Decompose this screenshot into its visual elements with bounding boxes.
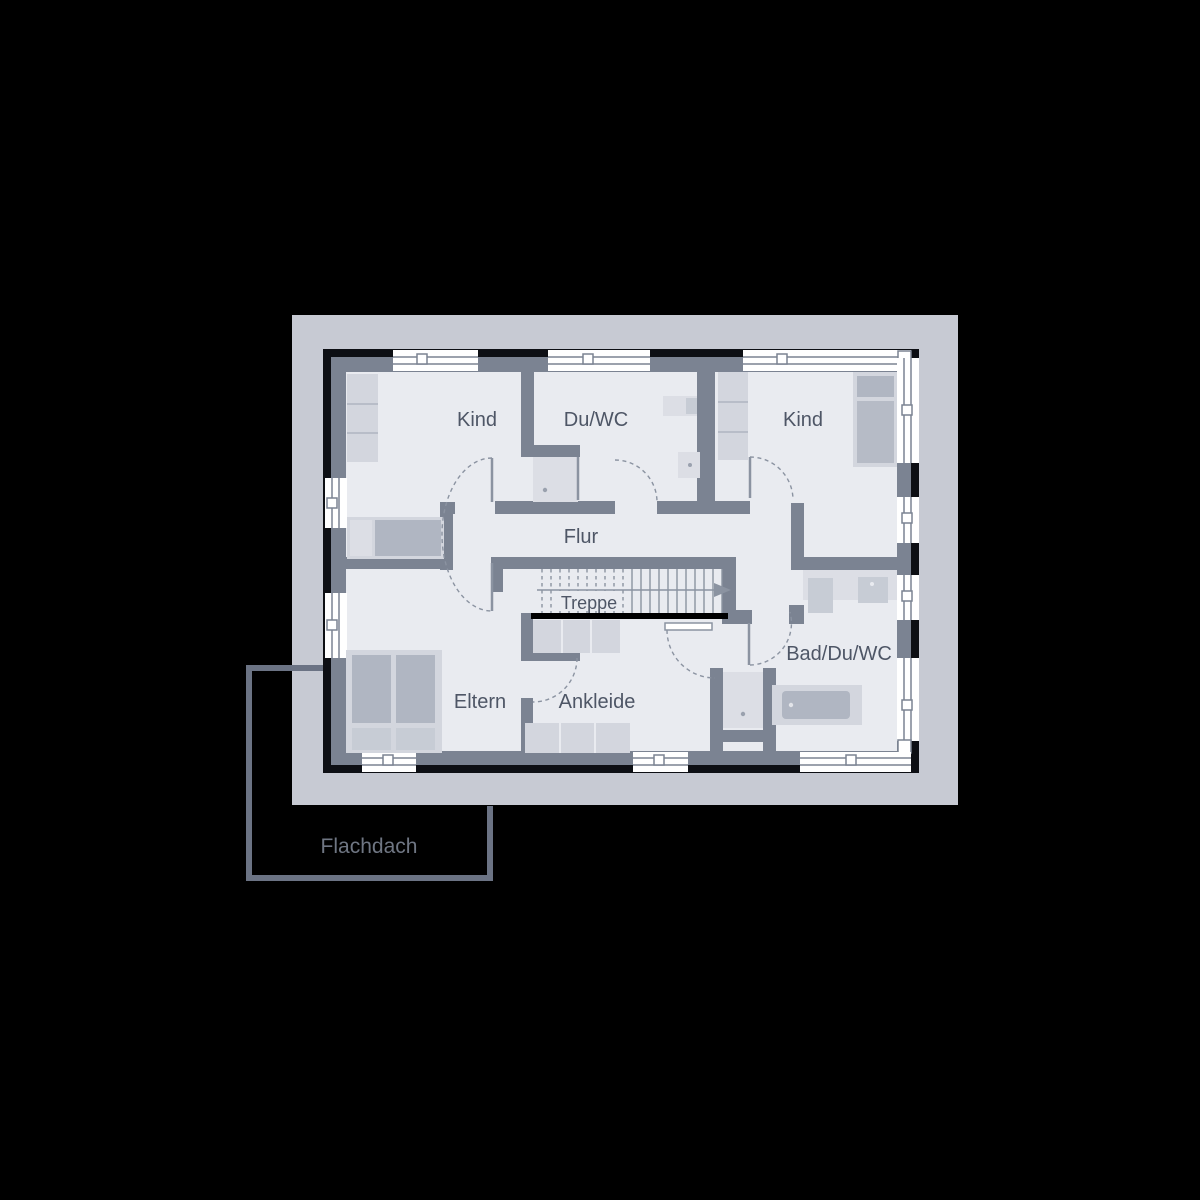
window-post [846,755,856,765]
window-west-kind-left [325,478,347,528]
window-post [902,591,912,601]
closet [525,723,630,753]
window-post [327,620,337,630]
room-label-kind-left: Kind [457,409,497,431]
window-post [902,513,912,523]
wall-stair-east [722,557,736,612]
window-south-bad [800,752,911,772]
window-north-kind-right [743,350,911,371]
window-post [327,498,337,508]
wall-stair-north [491,557,734,569]
window-east-2 [897,497,919,543]
window-west-eltern [325,593,347,658]
window-post [902,405,912,415]
room-label-treppe: Treppe [561,593,617,613]
room-label-eltern: Eltern [454,691,506,713]
floor-plan-screenshot: Treppe Kind Du/WC Kind Flur Eltern Ankle… [0,0,1200,1200]
shower-tray [723,672,763,728]
washbasin [663,396,697,416]
window-south-eltern [362,752,416,772]
room-label-flur: Flur [564,526,599,548]
room-label-du-wc: Du/WC [564,409,628,431]
window-post [383,755,393,765]
window-post [654,755,664,765]
toilet [678,452,700,478]
double-bed [346,650,442,753]
wall-bad-door-jamb-right [789,605,804,624]
wardrobe [347,374,378,462]
flachdach-label: Flachdach [321,835,418,858]
wall-duwc-east [697,372,715,513]
window-post [417,354,427,364]
stair-cut-line [531,613,728,619]
wall-bad-north [803,557,897,570]
wall-flur-kindR [791,503,804,570]
wall-flur-north-1 [495,501,615,514]
closet [533,620,620,653]
wardrobe [718,372,748,460]
window-post [777,354,787,364]
window-east-kind-right [897,358,919,463]
room-label-bad-du-wc: Bad/Du/WC [786,643,892,665]
bed [347,517,444,559]
wall-kindL-duwc [521,372,534,447]
wall-duwc-shelf [521,445,580,457]
window-east-3 [897,575,919,620]
window-north-duwc [548,350,650,371]
shower-tray [533,457,578,502]
room-label-ankleide: Ankleide [559,691,636,713]
room-label-kind-right: Kind [783,409,823,431]
bed [853,372,897,467]
window-south-ankleide [633,752,688,772]
window-corner-post [898,740,911,753]
bathtub [772,685,862,725]
wall-shower-south [710,730,776,742]
window-north-kind-left [393,350,478,371]
window-east-bad [897,658,919,753]
floor-plan-svg: Treppe Kind Du/WC Kind Flur Eltern Ankle… [0,0,1200,1200]
window-post [902,700,912,710]
door-leaf [665,623,712,630]
wall-closet-niche-h [521,653,580,661]
window-post [583,354,593,364]
wall-closet-niche-v [521,613,533,660]
